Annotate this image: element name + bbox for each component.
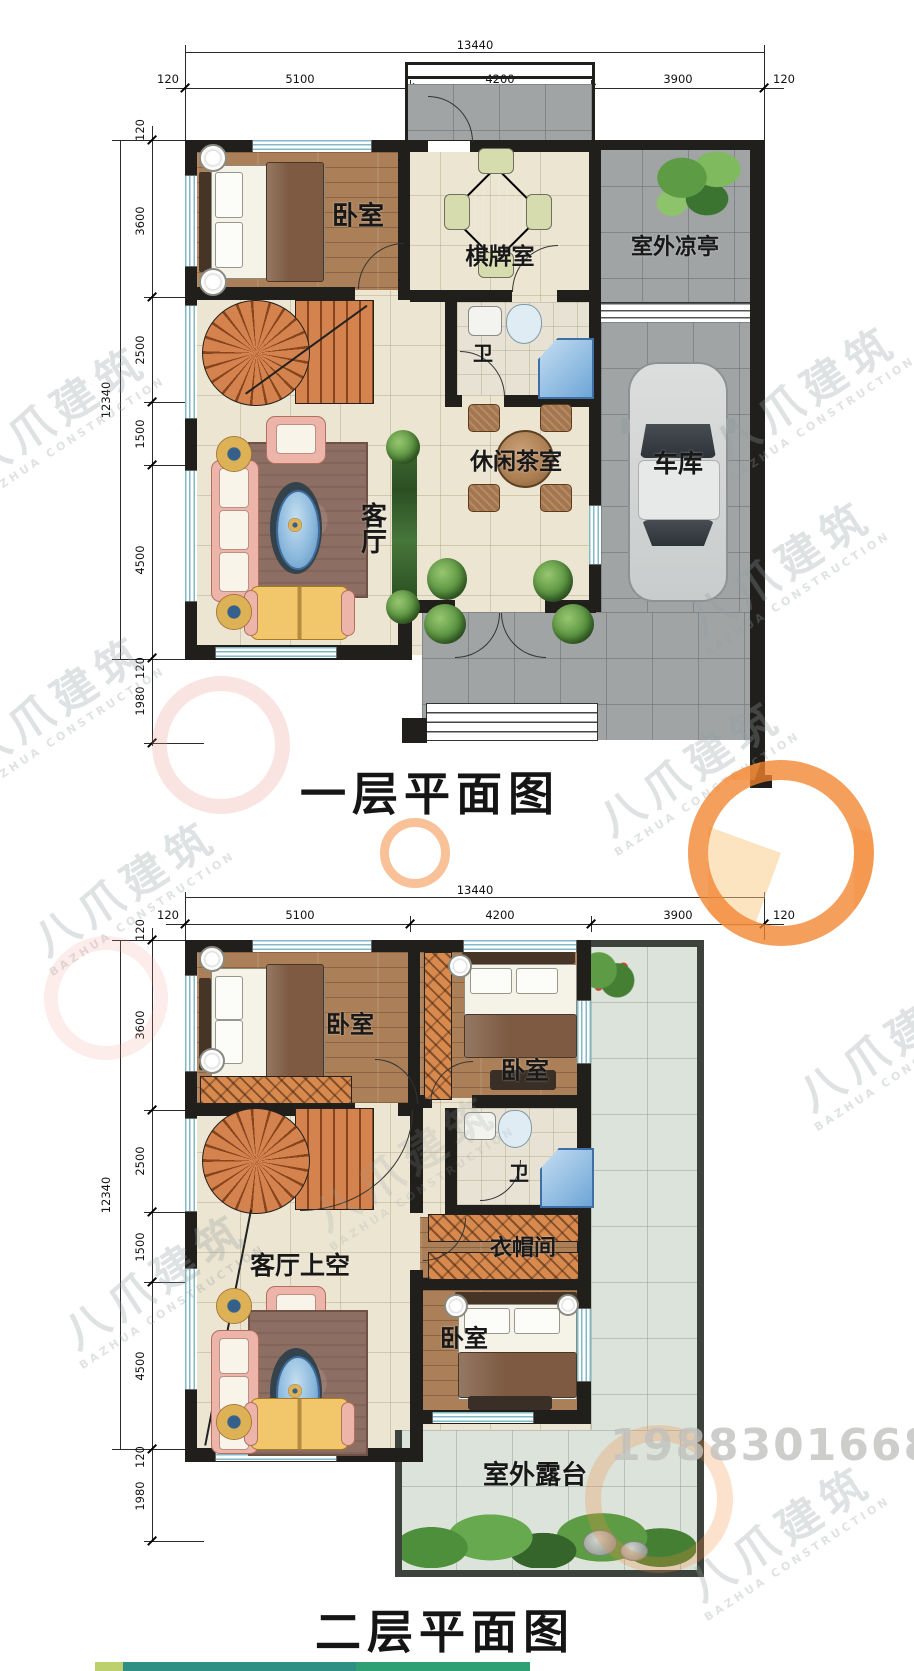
loveseat <box>250 1398 349 1450</box>
phone-watermark: 19883016688 <box>610 1420 914 1471</box>
pillow <box>514 1308 560 1334</box>
room-label-bedroom: 卧室 <box>326 1005 374 1040</box>
wall <box>472 1095 591 1108</box>
bottom-image-edge <box>95 1662 530 1671</box>
floor-plan-sheet: 八爪建筑 BAZHUA CONSTRUCTION 八爪建筑 BAZHUA CON… <box>0 0 914 1671</box>
bedside-lamp <box>199 946 225 972</box>
bedside-lamp <box>444 1294 468 1318</box>
bed-bench <box>468 1396 552 1410</box>
wall <box>410 1270 423 1418</box>
floor1-title: 一层平面图 <box>300 758 560 824</box>
pillow <box>470 968 512 994</box>
bedside-lamp <box>448 954 472 978</box>
blanket <box>458 1352 577 1398</box>
window <box>577 1308 591 1382</box>
room-label-bath: 卫 <box>509 1158 529 1187</box>
terrace-greenery <box>402 1500 696 1568</box>
sofa-cushion <box>219 1338 249 1374</box>
staircase-spiral <box>202 1108 310 1214</box>
bedside-lamp <box>557 1294 579 1316</box>
window <box>432 1412 534 1423</box>
room-label-bedroom: 卧室 <box>440 1319 488 1354</box>
floor-decor <box>216 1404 252 1440</box>
terrace-wall <box>395 1570 704 1577</box>
sink <box>464 1112 496 1140</box>
wall <box>445 1108 457 1208</box>
wall <box>410 1410 423 1462</box>
window <box>252 940 372 952</box>
pillow <box>215 976 243 1020</box>
room-label-terrace: 室外露台 <box>483 1455 587 1492</box>
floor2-title: 二层平面图 <box>315 1596 575 1662</box>
garden-rock <box>620 1541 648 1561</box>
terrace-wall <box>697 940 704 1577</box>
room-label-bedroom: 卧室 <box>501 1051 549 1086</box>
terrace-floor <box>591 946 699 1430</box>
floor-decor <box>216 1288 252 1324</box>
terrace-wall <box>591 940 703 947</box>
wardrobe <box>200 1076 352 1104</box>
loveseat-arm <box>341 1402 355 1446</box>
room-label-living-void: 客厅上空 <box>250 1246 350 1282</box>
blanket <box>266 964 324 1080</box>
window <box>185 975 197 1072</box>
window <box>185 1268 197 1390</box>
bed-headboard <box>462 952 575 964</box>
toilet <box>498 1110 532 1148</box>
room-label-cloakroom: 衣帽间 <box>490 1230 556 1262</box>
garden-rock <box>583 1530 617 1556</box>
table-decor <box>288 1384 302 1398</box>
window <box>185 1118 197 1212</box>
window <box>577 1000 591 1064</box>
window <box>463 940 577 952</box>
bedside-lamp <box>199 1048 225 1074</box>
pillow <box>516 968 558 994</box>
